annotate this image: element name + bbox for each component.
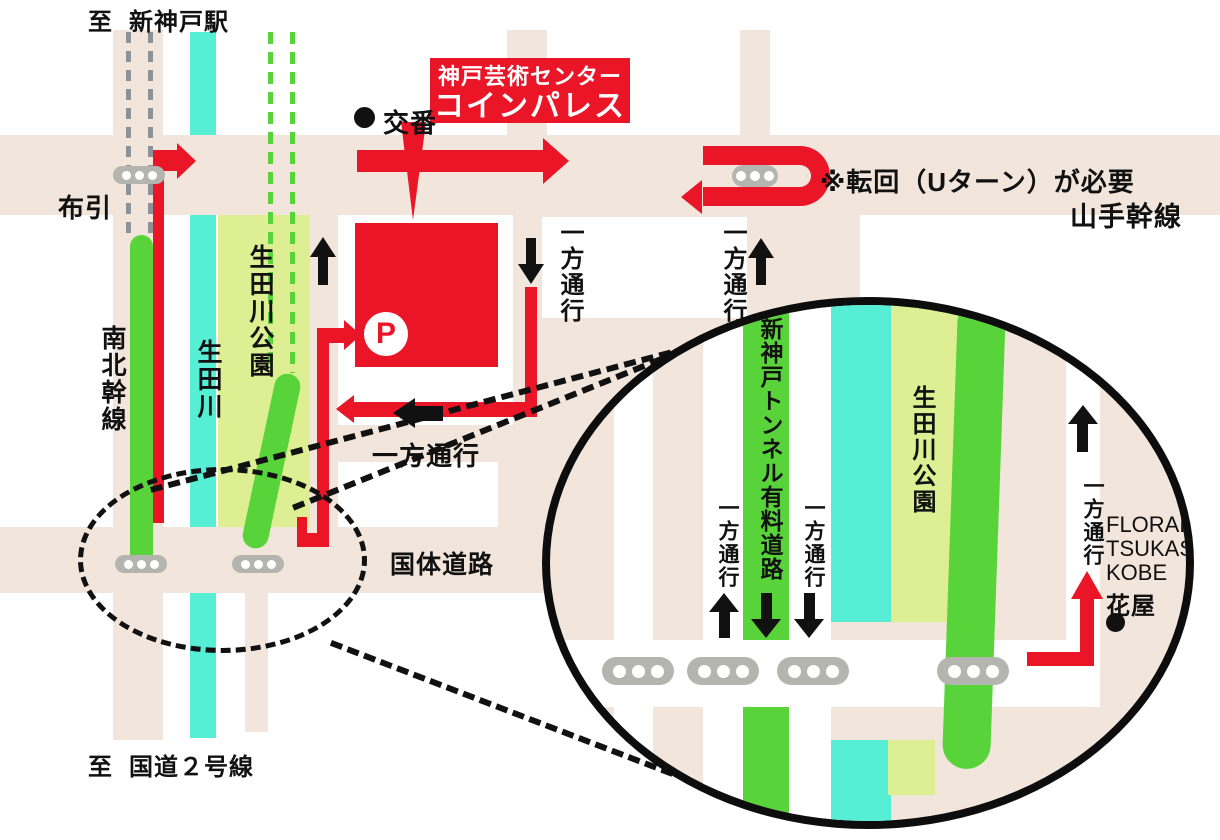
traffic-light [602,657,674,685]
flower-shop-line: TSUKASA. [1106,537,1194,561]
traffic-light [937,657,1009,685]
route-east-arrowhead [543,138,569,184]
route-north-arrowhead [177,143,196,179]
traffic-light [113,166,165,184]
title-box: 神戸芸術センター コインパレス [430,58,630,123]
one-way-up-arrow [1068,405,1098,424]
koban-label: 交番 [383,103,437,140]
river-label: 生田川 [190,339,226,420]
one-way-up-arrow [748,238,774,258]
tunnel-dashed-line [290,32,295,373]
park-label: 生田川公園 [242,244,278,379]
uturn-note: ※転回（Uターン）が必要 [820,162,1135,199]
inset-river [831,305,891,622]
traffic-light [732,165,778,187]
road-stub-oneway-up-top [740,30,770,135]
one-way-up-arrow-shaft [1077,423,1088,452]
ikutagawa-river-top [190,32,216,135]
inset-street [614,305,653,821]
dest-shinkobe: 至新神戸駅 [88,2,229,37]
title-line1: 神戸芸術センター [430,66,630,88]
one-way-up-arrow [310,237,336,257]
one-way-down-arrow [794,619,824,638]
uturn-arrowhead [681,180,702,214]
one-way-label: 一方通行 [798,497,828,589]
access-map: P 神戸芸術センター コインパレス 交番 至新神戸駅 至国道２号線 布引 ※転回… [0,0,1220,840]
dest-name: 国道２号線 [129,754,254,781]
rail-dashed-line [126,32,131,233]
inset-river [831,740,891,821]
one-way-down-arrow-shaft [761,593,772,620]
one-way-up-arrow-shaft [318,255,328,285]
route-parking-arrowhead [344,320,361,350]
one-way-up-arrow-shaft [756,256,766,285]
yamate-label: 山手幹線 [1070,195,1182,234]
route-west-arrowhead [336,395,354,423]
flower-shop-line: KOBE [1106,561,1194,585]
one-way-label: 一方通行 [552,220,587,324]
one-way-down-arrow-shaft [804,593,815,620]
traffic-light [687,657,759,685]
magnified-inset: 新神戸トンネル有料道路 生田川公園 一方通行 一方通行 一方通行 FLORAL … [542,297,1194,829]
parking-letter: P [376,317,396,351]
route-north-line [153,158,164,523]
one-way-label: 一方通行 [712,497,742,589]
parking-badge: P [364,312,408,356]
flower-shop-line: FLORAL [1106,513,1194,537]
one-way-up-arrow-shaft [719,611,730,638]
one-way-down-arrow [751,619,781,638]
nanboku-label: 南北幹線 [94,325,130,433]
dest-prefix: 至 [88,9,113,36]
inset-tunnel-label: 新神戸トンネル有料道路 [753,317,787,581]
one-way-label: 一方通行 [1077,475,1107,567]
flower-shop-dot [1106,613,1125,632]
kokutai-label: 国体道路 [390,545,494,581]
dest-prefix: 至 [88,754,113,781]
koban-dot [354,107,375,128]
inset-park-label: 生田川公園 [904,385,939,515]
one-way-down-arrow [518,264,544,284]
nunobiki-label: 布引 [58,188,112,225]
one-way-up-arrow [709,593,739,612]
inset-park [888,740,935,795]
one-way-down-arrow-shaft [526,238,536,266]
traffic-light [777,657,849,685]
route-parking-turn [318,328,344,343]
route-east-shaft [357,150,543,172]
flower-shop-name: FLORAL TSUKASA. KOBE [1106,513,1194,585]
title-line2: コインパレス [430,92,630,122]
inset-route-up-line [1080,597,1094,666]
inset-tunnel-toll-road [743,707,789,821]
dest-route2: 至国道２号線 [88,747,254,782]
inset-route-arrowhead [1071,571,1103,599]
dest-name: 新神戸駅 [129,9,229,36]
